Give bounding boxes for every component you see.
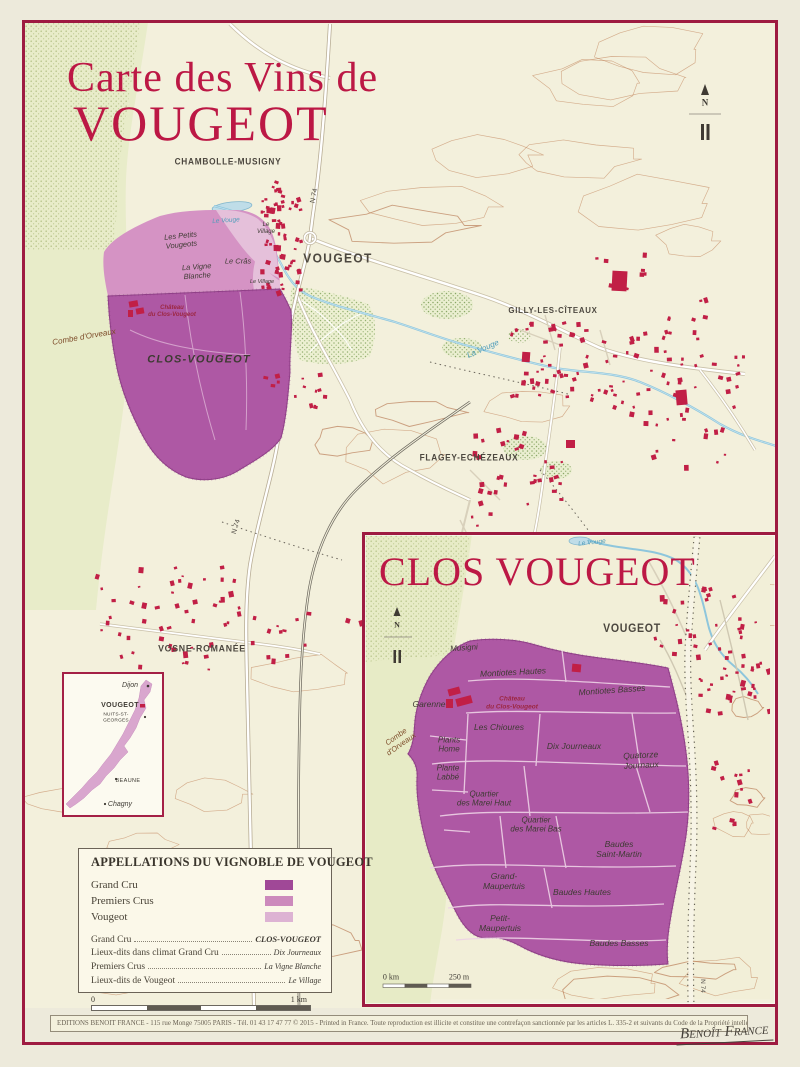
- label-plants-home: Plants Home: [438, 736, 460, 755]
- legend-swatch-row: Vougeot: [91, 909, 321, 925]
- label-baudes-hautes: Baudes Hautes: [553, 887, 611, 897]
- grand-cru-swatch: [265, 880, 293, 890]
- legend-scale-bar: [91, 1005, 311, 1011]
- label-quatorze-journaux: Quatorze Journaux: [623, 749, 659, 771]
- locator-dijon: Dijon: [122, 682, 138, 690]
- poster-title-line2: VOUGEOT: [73, 94, 329, 152]
- wine-map-poster: Carte des Vins de VOUGEOT CLOS VOUGEOT C…: [0, 0, 800, 1067]
- label-grand-maupertuis: Grand- Maupertuis: [483, 871, 525, 891]
- legend-scale-labels: 01 km: [91, 995, 321, 1004]
- legend-box: APPELLATIONS DU VIGNOBLE DE VOUGEOT Gran…: [78, 848, 332, 993]
- legend-entry: Grand CruCLOS-VOUGEOT: [91, 934, 321, 948]
- label-north-n-main: N: [702, 98, 709, 109]
- label-north-n-inset: N: [394, 620, 400, 629]
- label-garenne: Garenne: [412, 699, 445, 709]
- label-marei-haut: Quartier des Marei Haut: [457, 790, 511, 809]
- legend-swatch-label: Grand Cru: [91, 879, 138, 891]
- inset-map-base: [364, 534, 786, 1013]
- legend-entry: Lieux-dits dans climat Grand CruDix Jour…: [91, 948, 321, 962]
- label-le-village-sud: Le Village: [250, 279, 274, 285]
- label-n74-inset: N 74: [698, 979, 706, 993]
- label-gilly-les-citeaux: GILLY-LES-CÎTEAUX: [508, 305, 597, 315]
- label-chateau-main: Château du Clos-Vougeot: [148, 305, 196, 319]
- label-marei-bas: Quartier des Marei Bas: [510, 816, 561, 835]
- label-le-cras: Le Crâs: [225, 258, 251, 267]
- inset-scale-left: 0 km: [383, 972, 399, 981]
- legend-swatch-label: Premiers Crus: [91, 895, 154, 907]
- label-plante-labbe: Plante Labbé: [437, 764, 460, 783]
- label-baudes-saint-martin: Baudes Saint-Martin: [596, 839, 642, 859]
- label-dix-journeaux: Dix Journeaux: [547, 741, 601, 751]
- label-vigne-blanche: La Vigne Blanche: [182, 262, 213, 282]
- vougeot-swatch: [265, 912, 293, 922]
- legend-swatch-row: Grand Cru: [91, 877, 321, 893]
- footer-imprint: EDITIONS BENOIT FRANCE - 115 rue Monge 7…: [50, 1015, 748, 1032]
- scale-bar-inset: [383, 984, 471, 988]
- legend-title: APPELLATIONS DU VIGNOBLE DE VOUGEOT: [91, 855, 321, 870]
- label-flagey-echezeaux: FLAGEY-ECHÉZEAUX: [420, 453, 519, 464]
- locator-beaune: BEAUNE: [115, 778, 140, 784]
- inset-scale-right: 250 m: [449, 972, 469, 981]
- footer-text: EDITIONS BENOIT FRANCE - 115 rue Monge 7…: [51, 1016, 747, 1031]
- legend-entry: Lieux-dits de VougeotLe Village: [91, 976, 321, 990]
- label-chateau-inset: Château du Clos-Vougeot: [486, 695, 538, 710]
- label-vosne-romanee: VOSNE-ROMANÉE: [158, 643, 246, 654]
- legend-entry: Premiers CrusLa Vigne Blanche: [91, 962, 321, 976]
- locator-nuits-st-georges: NUITS-ST-GEORGES: [93, 712, 139, 723]
- label-vougeot-inset: VOUGEOT: [603, 621, 661, 635]
- label-le-village-nord: Le Village: [257, 222, 275, 236]
- locator-chagny: Chagny: [108, 801, 132, 809]
- legend-swatch-label: Vougeot: [91, 911, 127, 923]
- label-les-chioures: Les Chioures: [474, 722, 524, 732]
- label-musigni: Musigni: [450, 642, 478, 653]
- premiers-crus-swatch: [265, 896, 293, 906]
- label-petit-maupertuis: Petit- Maupertuis: [479, 913, 521, 933]
- legend-swatch-row: Premiers Crus: [91, 893, 321, 909]
- locator-vougeot: VOUGEOT: [101, 702, 139, 710]
- label-vougeot-town: VOUGEOT: [303, 250, 372, 265]
- label-chambolle-musigny: CHAMBOLLE-MUSIGNY: [175, 157, 282, 168]
- label-baudes-basses: Baudes Basses: [589, 938, 648, 948]
- label-clos-vougeot-main: CLOS-VOUGEOT: [147, 354, 251, 367]
- locator-artwork: [64, 674, 158, 811]
- label-petits-vougeots: Les Petits Vougeots: [164, 230, 199, 251]
- locator-map: Dijon VOUGEOT NUITS-ST-GEORGES BEAUNE Ch…: [62, 672, 164, 817]
- inset-title: CLOS VOUGEOT: [379, 548, 696, 595]
